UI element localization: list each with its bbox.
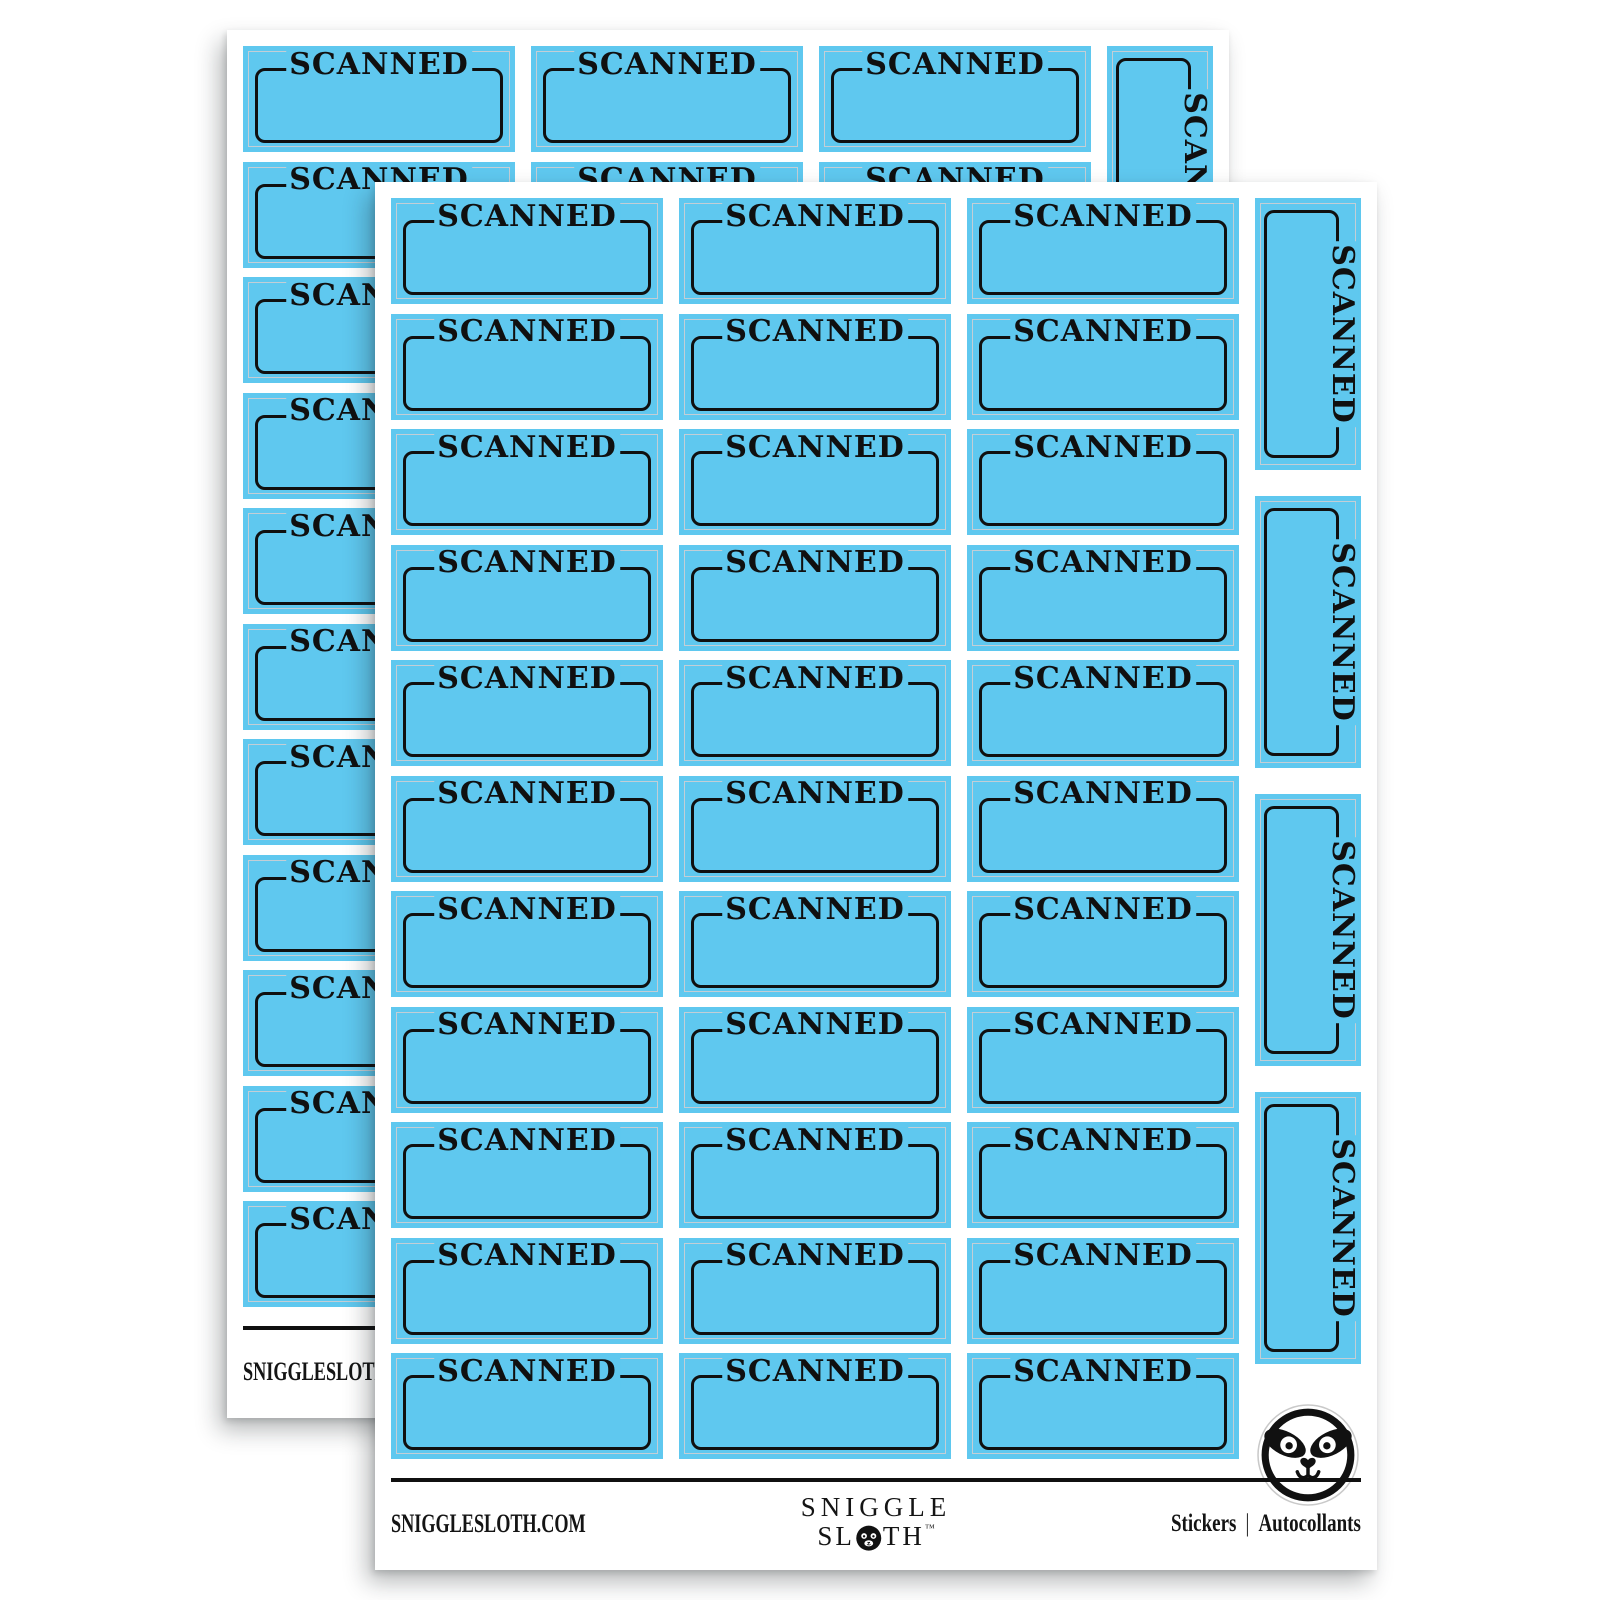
scanned-sticker-vertical: SCANNED xyxy=(1255,496,1361,768)
scanned-sticker-vertical: SCANNED xyxy=(1255,1092,1361,1364)
sticker-frame: SCANNED xyxy=(979,913,1227,988)
type-label-en: Stickers xyxy=(1171,1510,1236,1537)
sticker-label: SCANNED xyxy=(722,546,908,579)
scanned-sticker: SCANNED xyxy=(967,1007,1239,1113)
sticker-frame: SCANNED xyxy=(403,567,651,642)
sticker-frame: SCANNED xyxy=(979,1260,1227,1335)
brand-logo: SNIGGLE SL xyxy=(801,1493,952,1552)
sticker-frame: SCANNED xyxy=(979,682,1227,757)
sticker-label: SCANNED xyxy=(1010,893,1196,926)
scanned-sticker: SCANNED xyxy=(679,1353,951,1459)
sticker-label: SCANNED xyxy=(1326,539,1359,725)
sticker-label: SCANNED xyxy=(722,1239,908,1272)
scanned-sticker: SCANNED xyxy=(679,1122,951,1228)
scanned-sticker: SCANNED xyxy=(679,1007,951,1113)
scanned-sticker: SCANNED xyxy=(679,660,951,766)
brand-name-line2-left: SL xyxy=(817,1521,855,1551)
sticker-frame: SCANNED xyxy=(403,220,651,295)
scanned-sticker: SCANNED xyxy=(391,1238,663,1344)
scanned-sticker: SCANNED xyxy=(679,776,951,882)
product-type-labels: Stickers|Autocollants xyxy=(1171,1510,1361,1538)
sticker-frame: SCANNED xyxy=(403,1260,651,1335)
website-url: SNIGGLESLOTH.COM xyxy=(391,1509,586,1539)
sheet-footer: SNIGGLESLOTH.COM SNIGGLE SL xyxy=(391,1478,1361,1560)
sticker-label: SCANNED xyxy=(434,1124,620,1157)
sticker-frame: SCANNED xyxy=(979,1144,1227,1219)
sticker-label: SCANNED xyxy=(434,777,620,810)
sticker-frame: SCANNED xyxy=(979,1029,1227,1104)
sticker-frame: SCANNED xyxy=(979,567,1227,642)
sticker-frame: SCANNED xyxy=(979,451,1227,526)
scanned-sticker: SCANNED xyxy=(1255,496,1361,768)
sticker-frame: SCANNED xyxy=(255,68,503,143)
scanned-sticker: SCANNED xyxy=(679,891,951,997)
type-label-fr: Autocollants xyxy=(1259,1510,1361,1537)
sticker-frame: SCANNED xyxy=(979,336,1227,411)
sticker-sheet-front: SCANNED SCANNED SCANNED SCANNED SCANNED … xyxy=(375,182,1377,1570)
scanned-sticker: SCANNED xyxy=(679,545,951,651)
sticker-frame: SCANNED xyxy=(403,1144,651,1219)
sticker-frame: SCANNED xyxy=(1264,806,1339,1054)
brand-name-line2-right: TH xyxy=(883,1521,925,1551)
trademark-symbol: ™ xyxy=(925,1523,935,1534)
scanned-sticker: SCANNED xyxy=(391,545,663,651)
sticker-frame: SCANNED xyxy=(1264,210,1339,458)
scanned-sticker: SCANNED xyxy=(391,1007,663,1113)
scanned-sticker: SCANNED xyxy=(967,314,1239,420)
sticker-frame: SCANNED xyxy=(691,682,939,757)
sticker-frame: SCANNED xyxy=(979,798,1227,873)
sticker-frame: SCANNED xyxy=(691,451,939,526)
scanned-sticker-vertical: SCANNED xyxy=(1255,198,1361,470)
scanned-sticker-vertical: SCANNED xyxy=(1255,794,1361,1066)
sticker-label: SCANNED xyxy=(434,1355,620,1388)
sticker-frame: SCANNED xyxy=(691,913,939,988)
scanned-sticker: SCANNED xyxy=(391,314,663,420)
sticker-label: SCANNED xyxy=(434,315,620,348)
sheet-body: SCANNED SCANNED SCANNED SCANNED SCANNED … xyxy=(391,198,1361,1459)
sticker-frame: SCANNED xyxy=(403,1375,651,1450)
sticker-label: SCANNED xyxy=(1326,837,1359,1023)
scanned-sticker: SCANNED xyxy=(391,1353,663,1459)
scanned-sticker: SCANNED xyxy=(967,660,1239,766)
sticker-label: SCANNED xyxy=(434,893,620,926)
scanned-sticker: SCANNED xyxy=(967,545,1239,651)
vertical-sticker-column: SCANNED SCANNED SCANNED SCANNED xyxy=(1255,198,1361,1459)
brand-name-line1: SNIGGLE xyxy=(801,1493,952,1521)
scanned-sticker: SCANNED xyxy=(531,46,803,152)
scanned-sticker: SCANNED xyxy=(679,314,951,420)
sticker-frame: SCANNED xyxy=(691,336,939,411)
scanned-sticker: SCANNED xyxy=(679,429,951,535)
scanned-sticker: SCANNED xyxy=(967,776,1239,882)
sticker-label: SCANNED xyxy=(434,662,620,695)
sticker-frame: SCANNED xyxy=(691,1144,939,1219)
brand-name-line2: SL TH™ xyxy=(801,1521,952,1552)
scanned-sticker: SCANNED xyxy=(679,198,951,304)
footer-divider-line xyxy=(391,1478,1361,1482)
sticker-frame: SCANNED xyxy=(691,1375,939,1450)
scanned-sticker: SCANNED xyxy=(391,776,663,882)
sticker-label: SCANNED xyxy=(722,1355,908,1388)
scanned-sticker: SCANNED xyxy=(967,1353,1239,1459)
sticker-label: SCANNED xyxy=(1010,315,1196,348)
sticker-label: SCANNED xyxy=(574,48,760,81)
sticker-frame: SCANNED xyxy=(403,1029,651,1104)
sticker-frame: SCANNED xyxy=(691,798,939,873)
scanned-sticker: SCANNED xyxy=(679,1238,951,1344)
sticker-label: SCANNED xyxy=(434,431,620,464)
product-photo-sticker-sheets: SCANNED SCANNED SCANNED SCANNED SCANNED … xyxy=(0,0,1600,1600)
sticker-label: SCANNED xyxy=(1326,241,1359,427)
sticker-label: SCANNED xyxy=(722,1124,908,1157)
sticker-frame: SCANNED xyxy=(1264,508,1339,756)
scanned-sticker: SCANNED xyxy=(391,891,663,997)
scanned-sticker: SCANNED xyxy=(819,46,1091,152)
sticker-label: SCANNED xyxy=(434,1239,620,1272)
sticker-frame: SCANNED xyxy=(691,567,939,642)
scanned-sticker: SCANNED xyxy=(243,46,515,152)
sticker-label: SCANNED xyxy=(286,48,472,81)
scanned-sticker: SCANNED xyxy=(1255,198,1361,470)
sticker-frame: SCANNED xyxy=(403,682,651,757)
sticker-label: SCANNED xyxy=(1010,546,1196,579)
sticker-label: SCANNED xyxy=(722,431,908,464)
sticker-frame: SCANNED xyxy=(979,220,1227,295)
sticker-grid: SCANNED SCANNED SCANNED SCANNED SCANNED … xyxy=(391,198,1239,1459)
sticker-frame: SCANNED xyxy=(979,1375,1227,1450)
sticker-label: SCANNED xyxy=(434,546,620,579)
sticker-label: SCANNED xyxy=(1326,1135,1359,1321)
scanned-sticker: SCANNED xyxy=(967,198,1239,304)
sticker-label: SCANNED xyxy=(1010,1008,1196,1041)
sticker-frame: SCANNED xyxy=(691,220,939,295)
sticker-frame: SCANNED xyxy=(403,798,651,873)
sticker-frame: SCANNED xyxy=(831,68,1079,143)
sticker-label: SCANNED xyxy=(722,777,908,810)
scanned-sticker: SCANNED xyxy=(967,891,1239,997)
sticker-label: SCANNED xyxy=(1010,777,1196,810)
sticker-label: SCANNED xyxy=(722,893,908,926)
scanned-sticker: SCANNED xyxy=(967,1238,1239,1344)
sticker-label: SCANNED xyxy=(722,315,908,348)
sloth-face-icon-small xyxy=(856,1525,882,1551)
sticker-label: SCANNED xyxy=(862,48,1048,81)
label-divider: | xyxy=(1246,1510,1250,1537)
scanned-sticker: SCANNED xyxy=(391,198,663,304)
sticker-label: SCANNED xyxy=(434,200,620,233)
scanned-sticker: SCANNED xyxy=(391,429,663,535)
sticker-frame: SCANNED xyxy=(1264,1104,1339,1352)
sticker-label: SCANNED xyxy=(434,1008,620,1041)
sticker-label: SCANNED xyxy=(722,200,908,233)
sticker-frame: SCANNED xyxy=(403,336,651,411)
sticker-label: SCANNED xyxy=(1010,1239,1196,1272)
sticker-frame: SCANNED xyxy=(691,1260,939,1335)
scanned-sticker: SCANNED xyxy=(391,1122,663,1228)
sticker-label: SCANNED xyxy=(1010,1355,1196,1388)
sticker-label: SCANNED xyxy=(1010,1124,1196,1157)
footer-row: SNIGGLESLOTH.COM SNIGGLE SL xyxy=(391,1488,1361,1560)
scanned-sticker: SCANNED xyxy=(391,660,663,766)
sticker-frame: SCANNED xyxy=(543,68,791,143)
sticker-label: SCANNED xyxy=(722,662,908,695)
scanned-sticker: SCANNED xyxy=(1255,1092,1361,1364)
sticker-frame: SCANNED xyxy=(403,451,651,526)
scanned-sticker: SCANNED xyxy=(967,1122,1239,1228)
sticker-label: SCANNED xyxy=(1010,200,1196,233)
scanned-sticker: SCANNED xyxy=(967,429,1239,535)
sticker-label: SCANNED xyxy=(1010,662,1196,695)
sticker-label: SCANNED xyxy=(722,1008,908,1041)
sticker-frame: SCANNED xyxy=(403,913,651,988)
sticker-label: SCANNED xyxy=(1010,431,1196,464)
sticker-frame: SCANNED xyxy=(691,1029,939,1104)
scanned-sticker: SCANNED xyxy=(1255,794,1361,1066)
